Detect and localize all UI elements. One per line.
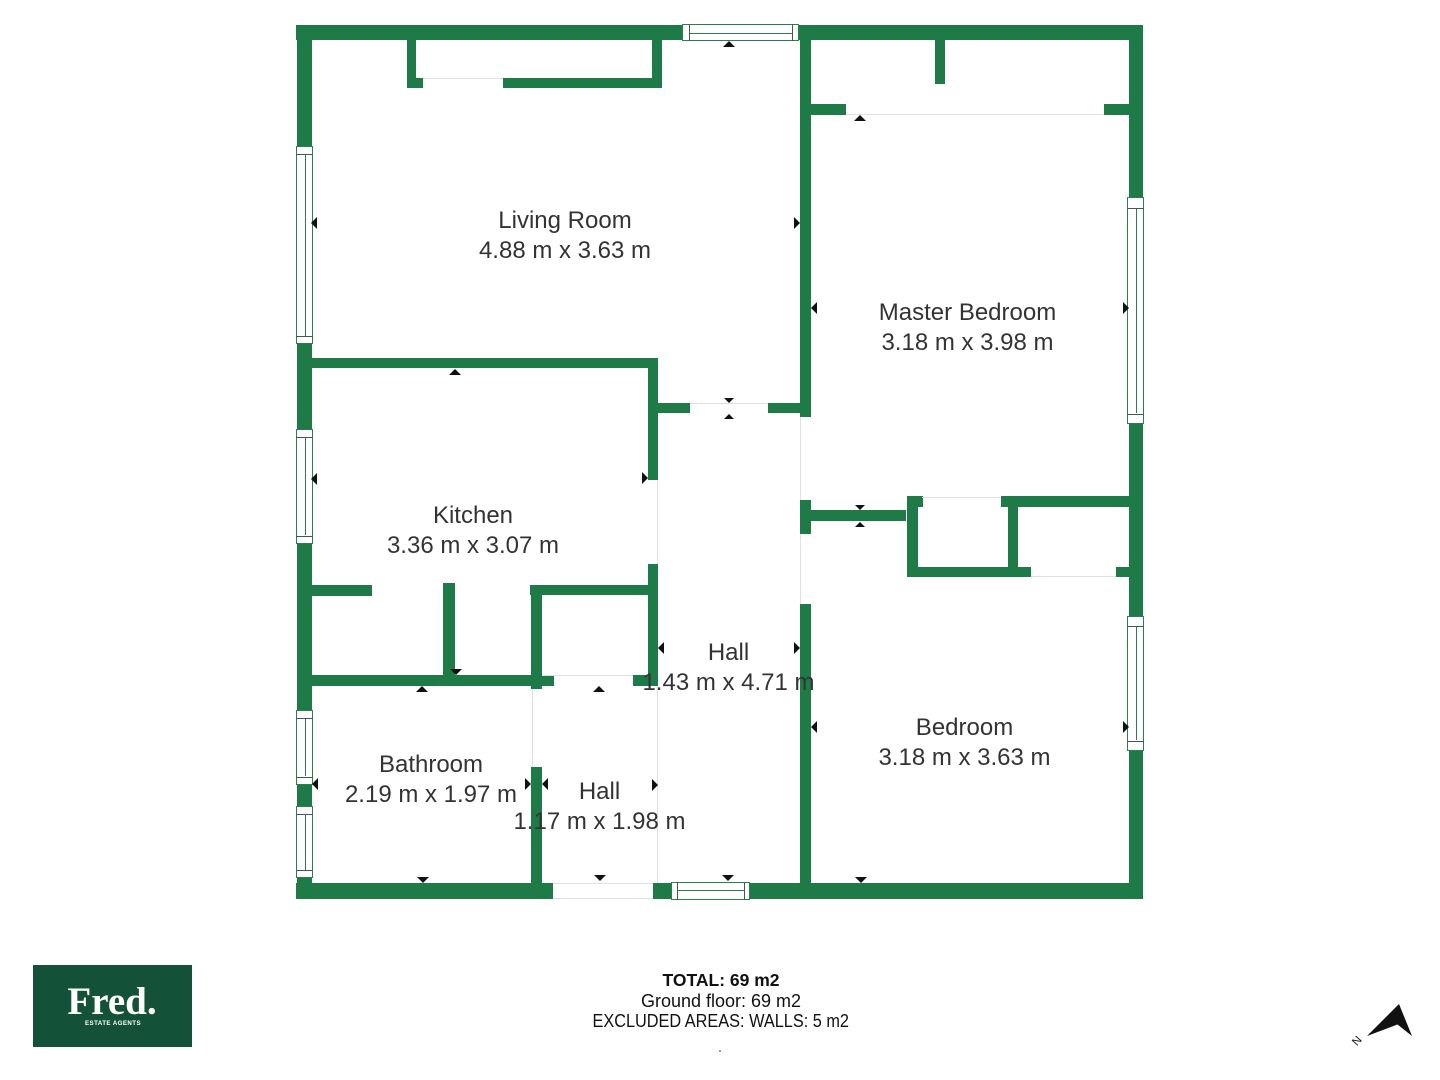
- svg-text:N: N: [1350, 1034, 1364, 1048]
